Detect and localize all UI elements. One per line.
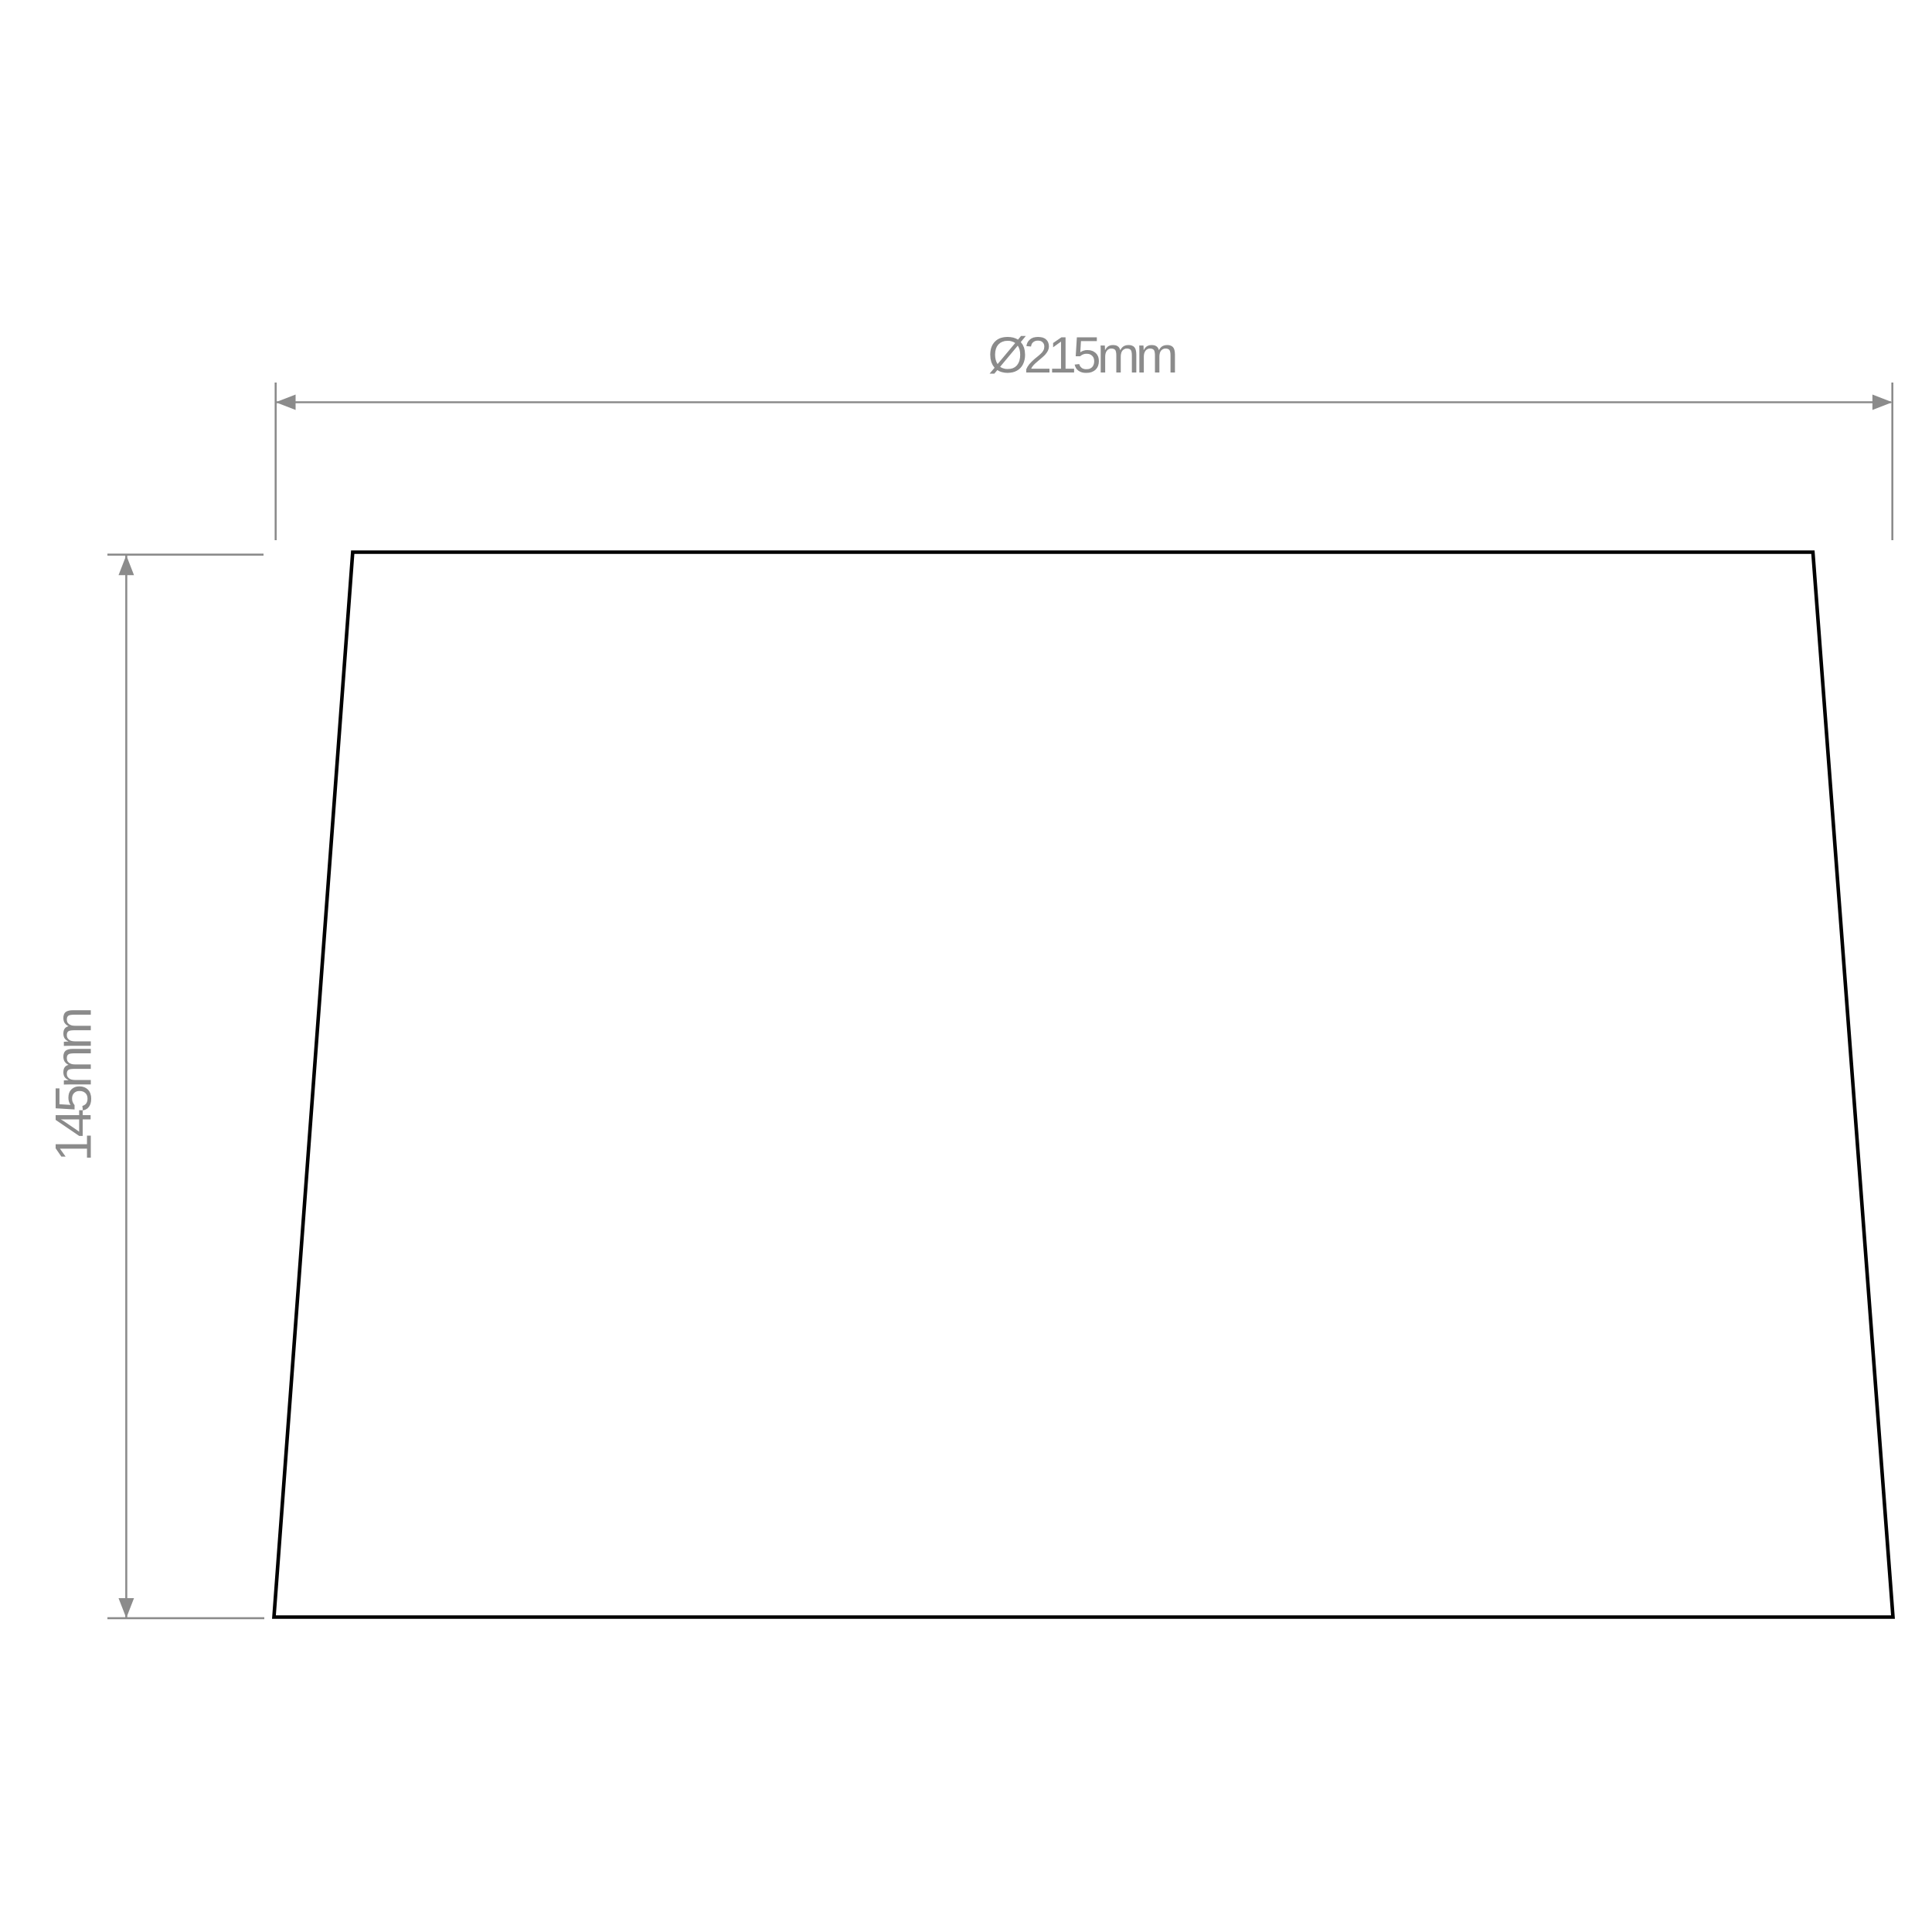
svg-text:Ø215mm: Ø215mm [988, 326, 1175, 383]
svg-text:145mm: 145mm [45, 1010, 102, 1162]
